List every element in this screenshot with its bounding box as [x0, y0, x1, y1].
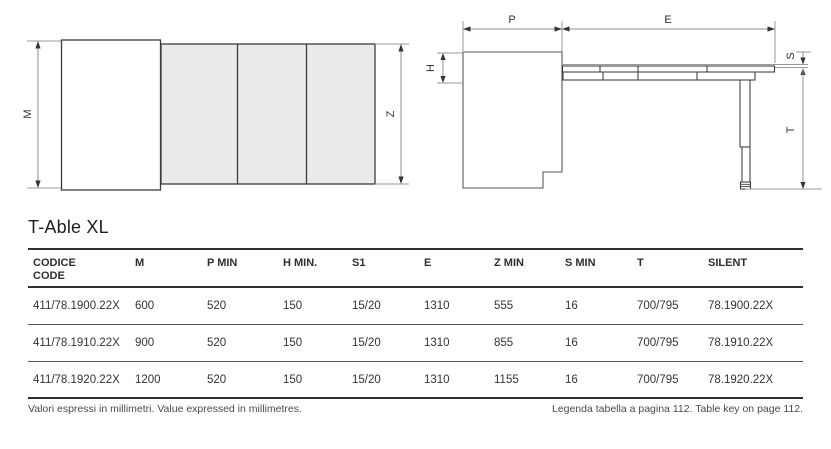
- dim-label-z: Z: [385, 110, 397, 117]
- cell-h-min: 150: [283, 300, 352, 312]
- cell-m: 900: [135, 337, 207, 349]
- column-header-h-min: H MIN.: [283, 250, 352, 286]
- cell-e: 1310: [424, 337, 494, 349]
- footer-note-units: Valori espressi in millimetri. Value exp…: [28, 403, 302, 415]
- cell-code: 411/78.1920.22X: [28, 374, 135, 386]
- m-arrow-down: [35, 181, 40, 189]
- table-row: 411/78.1900.22X 600 520 150 15/20 1310 5…: [28, 288, 803, 325]
- cell-z-min: 1155: [494, 374, 565, 386]
- table-footer: Valori espressi in millimetri. Value exp…: [28, 403, 803, 415]
- cell-silent: 78.1920.22X: [708, 374, 803, 386]
- cell-p-min: 520: [207, 374, 283, 386]
- h-arrow-down: [440, 76, 445, 83]
- leg-upper-section: [740, 80, 750, 147]
- column-header-p-min: P MIN: [207, 250, 283, 286]
- cell-t: 700/795: [637, 374, 708, 386]
- z-arrow-down: [398, 177, 403, 185]
- catalog-page: M Z P E H: [0, 0, 831, 449]
- table-header-row: CODICE CODE M P MIN H MIN. S1 E Z MIN S …: [28, 250, 803, 288]
- column-header-s-min: S MIN: [565, 250, 637, 286]
- cell-z-min: 555: [494, 300, 565, 312]
- dim-label-e: E: [664, 14, 671, 26]
- cell-silent: 78.1900.22X: [708, 300, 803, 312]
- page-title: T-Able XL: [28, 217, 109, 238]
- cell-m: 1200: [135, 374, 207, 386]
- cell-s-min: 16: [565, 300, 637, 312]
- side-view-diagram: P E H: [420, 0, 831, 210]
- dim-label-t: T: [785, 126, 797, 133]
- footer-note-legend: Legenda tabella a pagina 112. Table key …: [552, 403, 803, 415]
- table-row: 411/78.1920.22X 1200 520 150 15/20 1310 …: [28, 362, 803, 399]
- cell-e: 1310: [424, 374, 494, 386]
- cell-p-min: 520: [207, 300, 283, 312]
- cell-s-min: 16: [565, 374, 637, 386]
- cell-h-min: 150: [283, 374, 352, 386]
- column-header-s1: S1: [352, 250, 424, 286]
- z-arrow-up: [398, 44, 403, 52]
- cell-code: 411/78.1910.22X: [28, 337, 135, 349]
- cell-silent: 78.1910.22X: [708, 337, 803, 349]
- table-panels-rect: [161, 44, 375, 184]
- e-arrow-left: [562, 26, 570, 31]
- spec-table: CODICE CODE M P MIN H MIN. S1 E Z MIN S …: [28, 248, 803, 399]
- column-header-m: M: [135, 250, 207, 286]
- cell-code: 411/78.1900.22X: [28, 300, 135, 312]
- cell-s1: 15/20: [352, 300, 424, 312]
- table-row: 411/78.1910.22X 900 520 150 15/20 1310 8…: [28, 325, 803, 362]
- table-leaf-top: [563, 66, 775, 72]
- p-arrow-left: [463, 26, 471, 31]
- leg-foot: [741, 182, 751, 189]
- column-header-z-min: Z MIN: [494, 250, 565, 286]
- column-header-e: E: [424, 250, 494, 286]
- table-body: 411/78.1900.22X 600 520 150 15/20 1310 5…: [28, 288, 803, 399]
- table-rail-lower: [563, 72, 755, 80]
- cell-s1: 15/20: [352, 337, 424, 349]
- cell-s-min: 16: [565, 337, 637, 349]
- cell-m: 600: [135, 300, 207, 312]
- cell-t: 700/795: [637, 337, 708, 349]
- column-header-silent: SILENT: [708, 250, 803, 286]
- m-arrow-up: [35, 41, 40, 49]
- dim-label-h: H: [425, 64, 437, 72]
- dim-label-p: P: [508, 14, 515, 26]
- leg-lower-section: [742, 147, 750, 182]
- s-arrow-down: [800, 58, 805, 65]
- top-view-diagram: M Z: [0, 0, 420, 210]
- h-arrow-up: [440, 53, 445, 60]
- cell-z-min: 855: [494, 337, 565, 349]
- cabinet-outline: [463, 52, 562, 188]
- cell-e: 1310: [424, 300, 494, 312]
- e-arrow-right: [768, 26, 776, 31]
- column-header-t: T: [637, 250, 708, 286]
- dim-label-s: S: [785, 52, 797, 59]
- t-arrow-down: [800, 182, 805, 189]
- cell-p-min: 520: [207, 337, 283, 349]
- p-arrow-right: [555, 26, 563, 31]
- cell-h-min: 150: [283, 337, 352, 349]
- dim-label-m: M: [22, 109, 34, 118]
- cell-s1: 15/20: [352, 374, 424, 386]
- column-header-codice: CODICE CODE: [28, 250, 135, 286]
- cell-t: 700/795: [637, 300, 708, 312]
- cabinet-top-rect: [62, 40, 161, 190]
